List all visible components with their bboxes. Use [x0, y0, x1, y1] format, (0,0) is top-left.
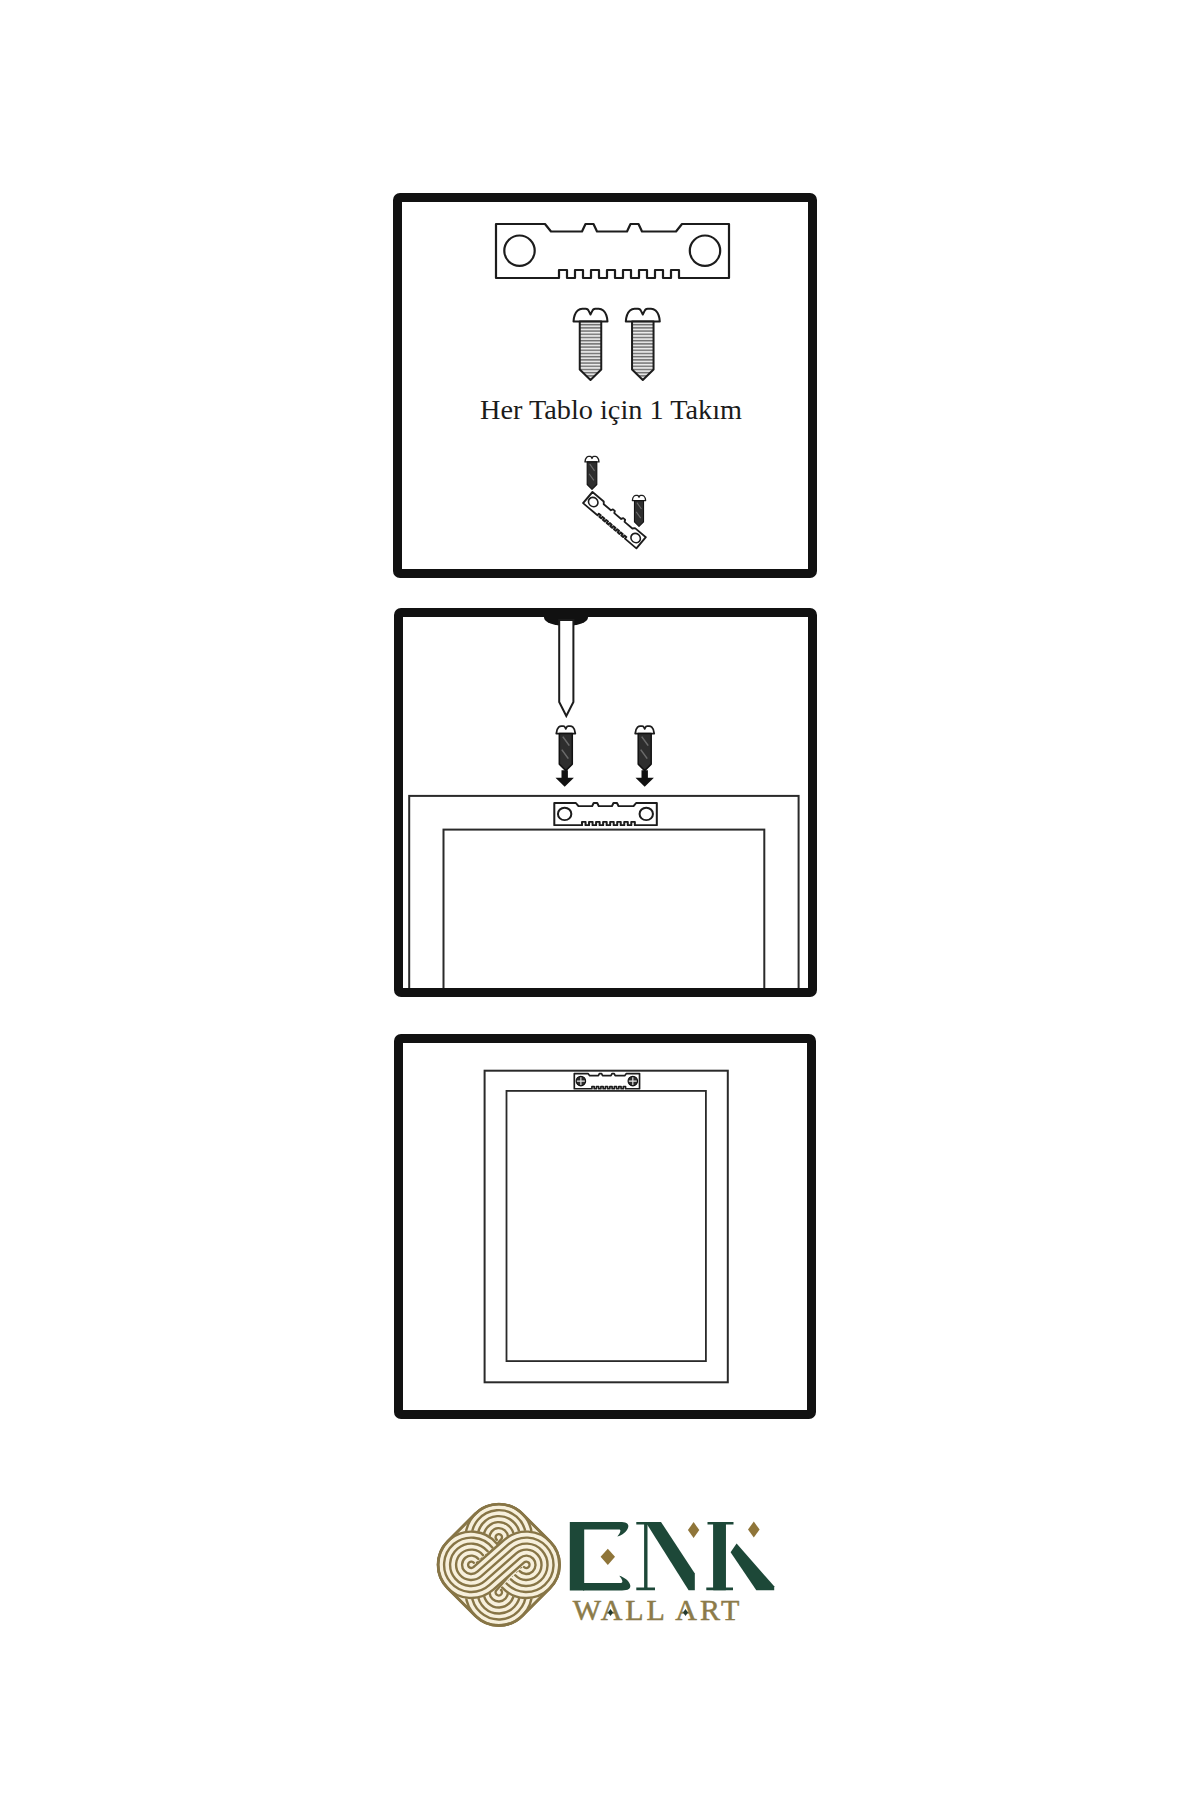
svg-text:Her Tablo için 1 Takım: Her Tablo için 1 Takım [480, 394, 742, 425]
svg-text:WALL ART: WALL ART [573, 1593, 742, 1626]
